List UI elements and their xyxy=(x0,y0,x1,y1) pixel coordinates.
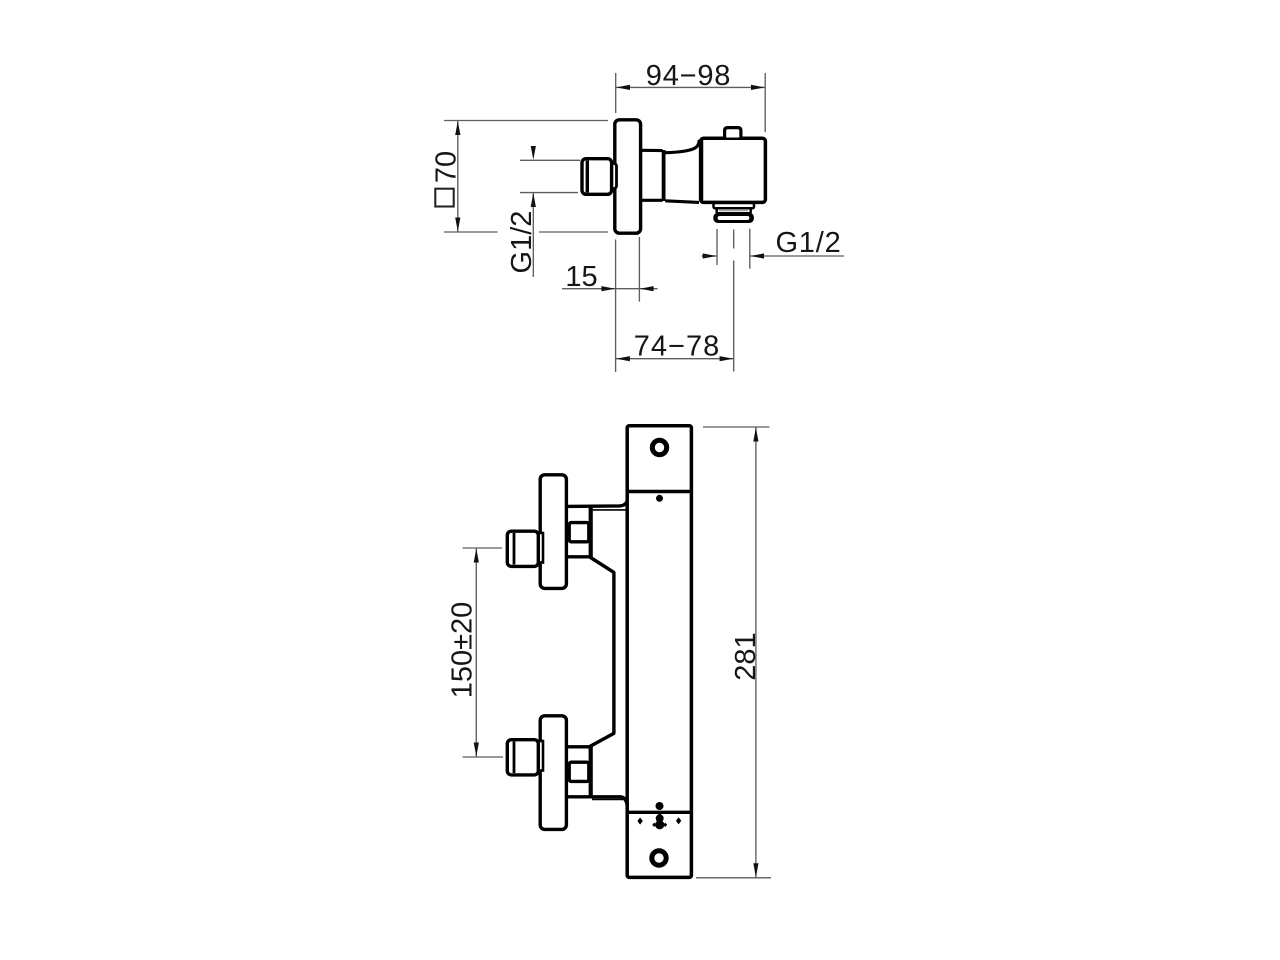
svg-text:150±20: 150±20 xyxy=(447,602,479,699)
svg-text:G1/2: G1/2 xyxy=(506,211,538,274)
svg-text:94−98: 94−98 xyxy=(646,60,731,92)
svg-text:74−78: 74−78 xyxy=(634,330,720,362)
svg-text:281: 281 xyxy=(730,632,762,680)
svg-text:G1/2: G1/2 xyxy=(775,227,841,259)
svg-text:70: 70 xyxy=(431,151,463,183)
svg-text:15: 15 xyxy=(565,261,597,293)
